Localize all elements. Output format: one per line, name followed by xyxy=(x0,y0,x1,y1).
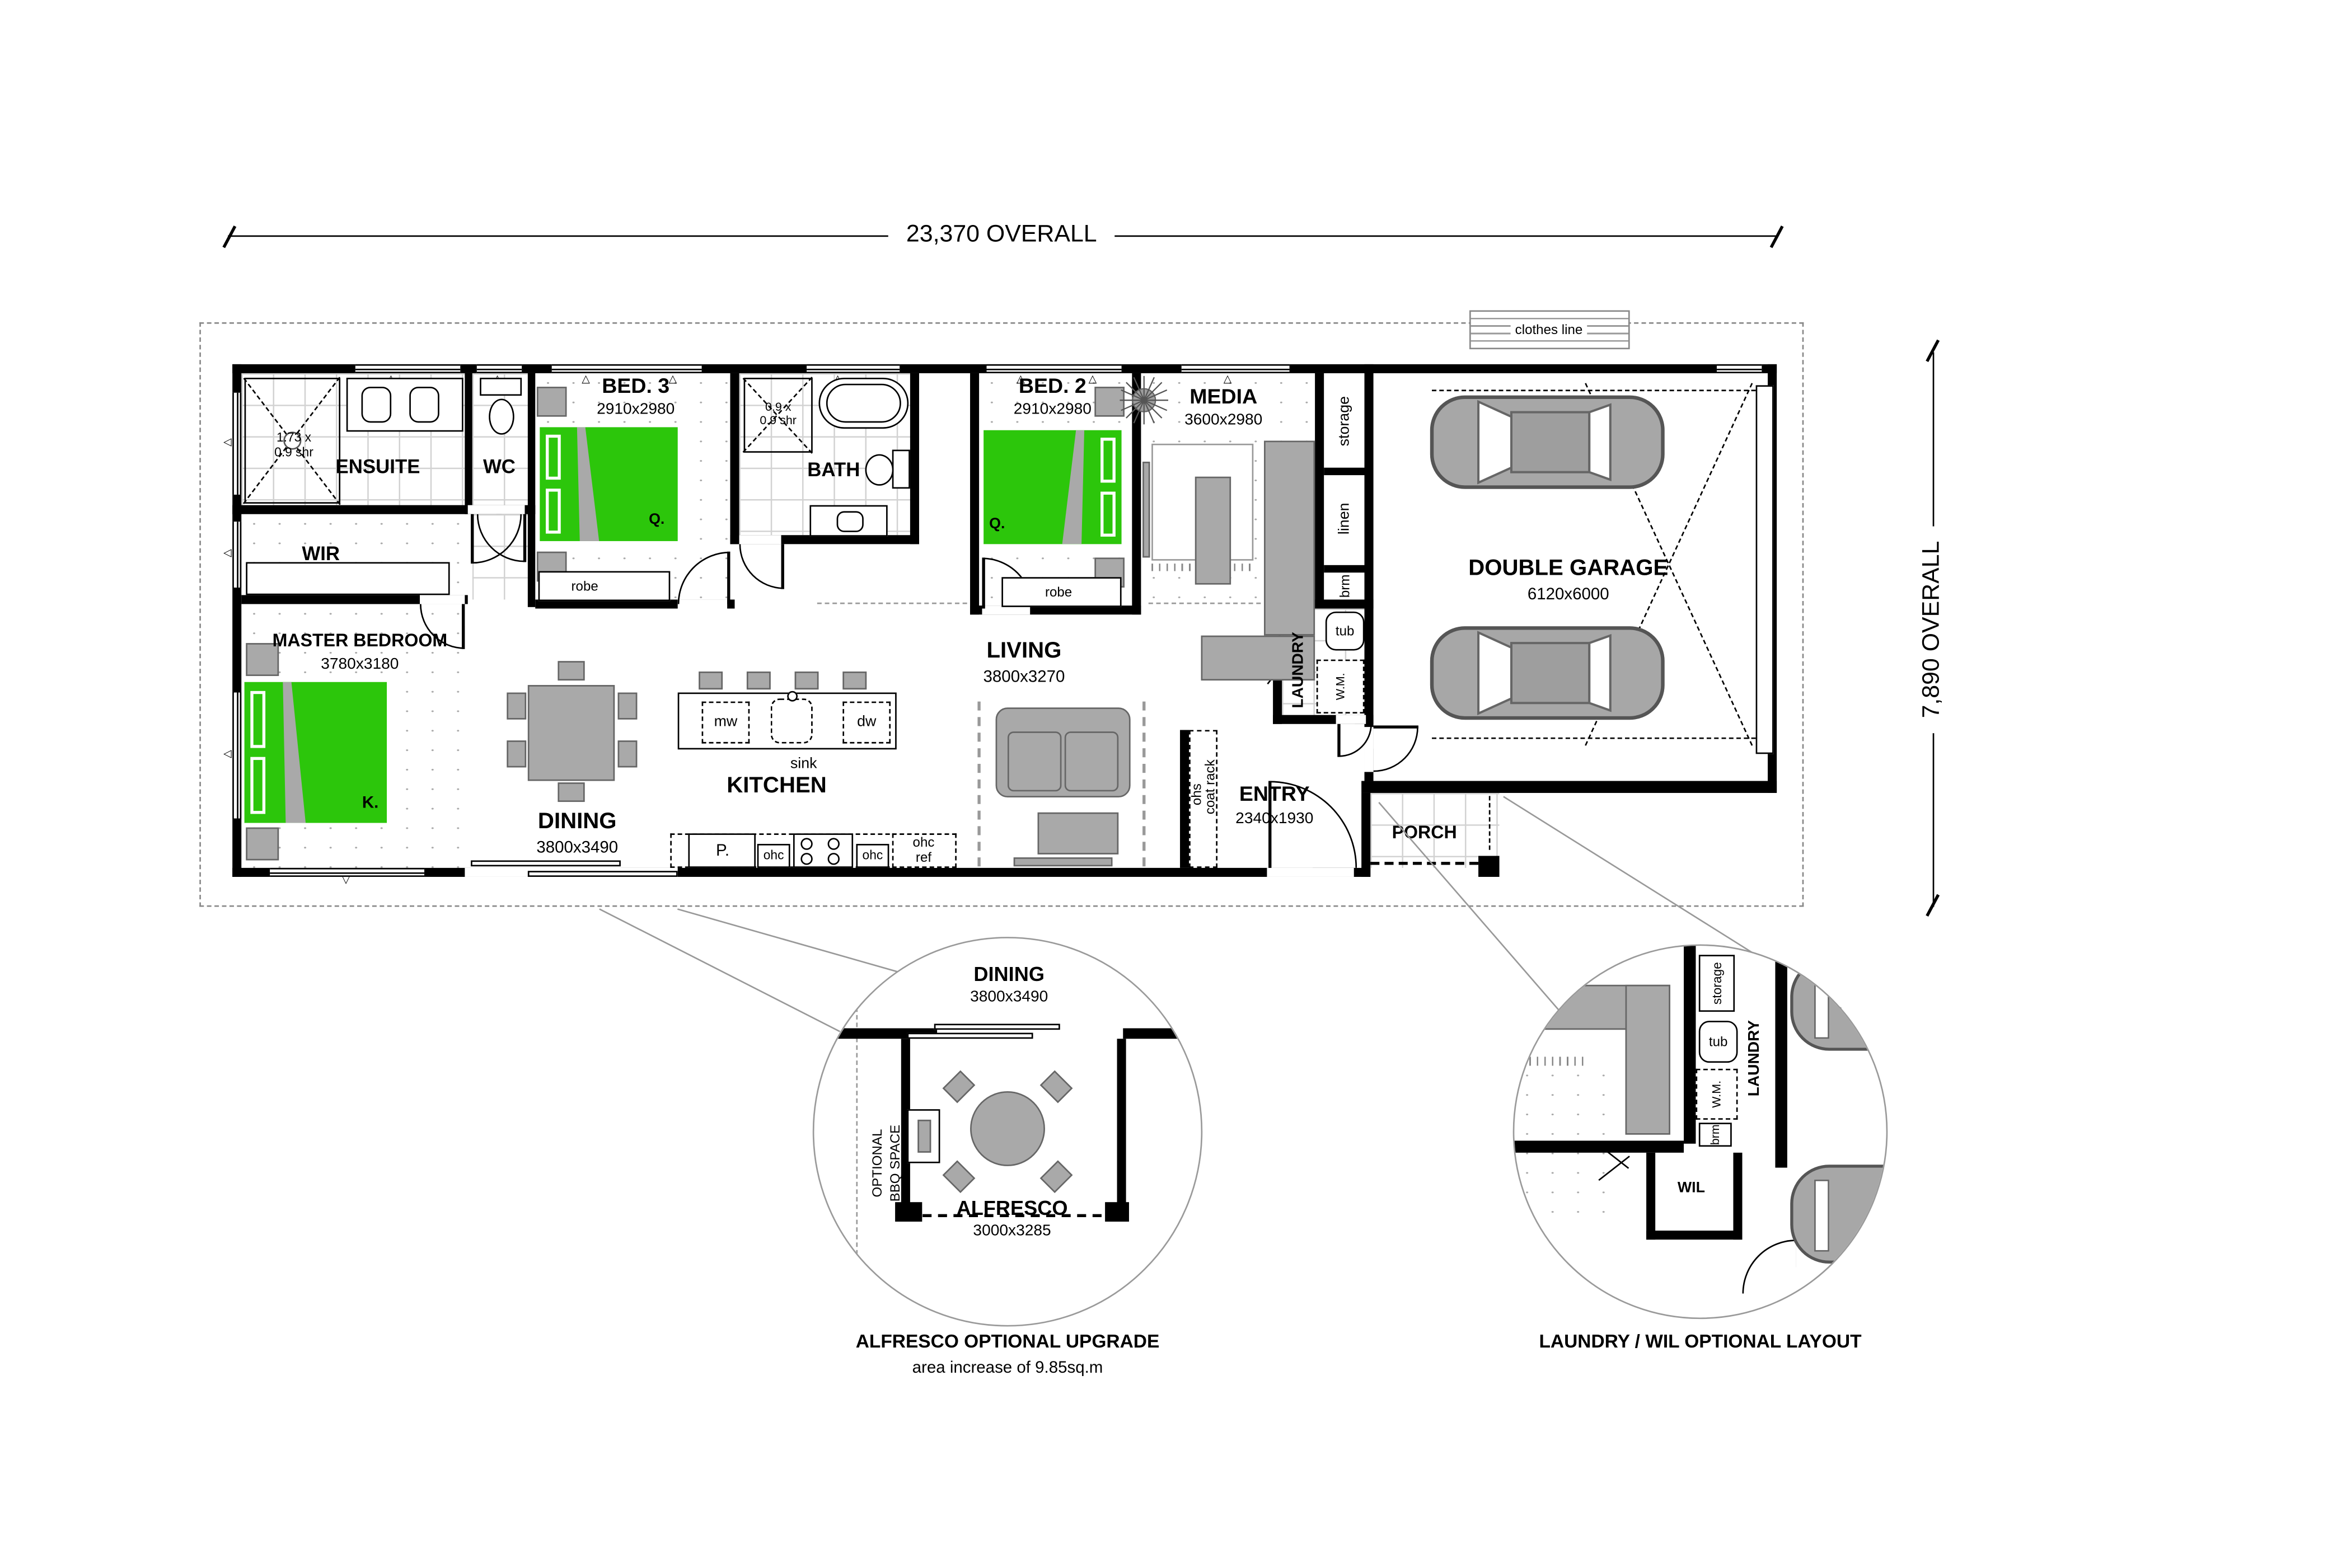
burner xyxy=(800,838,812,849)
wall-ensuite-wc xyxy=(465,373,472,514)
garage-dashed-line xyxy=(1432,389,1756,391)
bbq-plate xyxy=(917,1120,931,1153)
window xyxy=(986,364,1121,373)
window-marker-icon: △ xyxy=(1089,375,1097,386)
pillow xyxy=(546,489,561,533)
room-label-bed3: BED. 3 xyxy=(602,375,669,398)
burner xyxy=(828,853,840,865)
pillow xyxy=(1100,438,1116,482)
car-icon xyxy=(1427,393,1668,492)
room-label-laundry: LAUNDRY xyxy=(1290,632,1308,708)
door-swing xyxy=(1742,1240,1796,1293)
room-size-living: 3800x3270 xyxy=(984,668,1065,687)
door-gap-master xyxy=(420,595,465,604)
dining-chair xyxy=(618,692,638,719)
detail-dining-label: DINING xyxy=(973,963,1045,985)
sectional-sofa xyxy=(1264,440,1315,635)
mw-label: mw xyxy=(714,714,738,731)
wall-wc-bed3 xyxy=(528,373,535,607)
door-leaf xyxy=(982,557,984,608)
opening-dashed xyxy=(1149,603,1268,604)
sink-box xyxy=(771,698,813,743)
dining-chair xyxy=(618,740,638,767)
stool xyxy=(795,672,819,689)
leader-line xyxy=(599,908,840,1032)
door-gap-bath xyxy=(739,535,781,544)
door-gap-hall xyxy=(468,505,525,514)
window xyxy=(232,393,241,495)
window xyxy=(355,364,460,373)
detail-alfresco-size: 3000x3285 xyxy=(973,1223,1051,1241)
wall-porch-left xyxy=(1361,793,1370,877)
shower-size-label: 1.73 x 0.9 shr xyxy=(274,431,313,459)
door-leaf xyxy=(523,514,526,562)
room-label-ensuite: ENSUITE xyxy=(336,457,420,478)
stool xyxy=(842,672,867,689)
wall-storage-linen xyxy=(1324,468,1364,475)
porch-post xyxy=(1478,856,1500,877)
sofa-cushion xyxy=(1065,731,1118,791)
wir-shelf xyxy=(246,562,449,595)
alfresco-note: area increase of 9.85sq.m xyxy=(912,1359,1103,1378)
window-marker-icon: △ xyxy=(669,375,677,386)
sliding-door-leaf xyxy=(471,860,621,866)
room-label-wc: WC xyxy=(483,457,516,478)
door-leaf xyxy=(462,604,464,649)
wall xyxy=(1775,946,1787,1167)
room-label-media: MEDIA xyxy=(1189,386,1257,409)
linen-label: linen xyxy=(1337,503,1353,534)
sliding-door-leaf xyxy=(934,1024,1060,1030)
wall xyxy=(1514,1140,1684,1152)
wall-bed2-left xyxy=(970,373,979,614)
room-size-media: 3600x2980 xyxy=(1184,412,1262,430)
shower-size-label: 0.9 x 0.9 shr xyxy=(760,402,797,429)
sliding-door-leaf xyxy=(907,1033,1033,1039)
room-label-bed2: BED. 2 xyxy=(1019,375,1086,398)
brm-label: brm xyxy=(1708,1124,1722,1145)
tub-label: tub xyxy=(1709,1034,1728,1049)
room-label-master: MASTER BEDROOM xyxy=(273,631,448,651)
bed-tag-master: K. xyxy=(362,794,378,813)
dw-label: dw xyxy=(857,714,876,731)
car-icon xyxy=(1790,958,1888,1051)
alfresco-chair xyxy=(943,1071,976,1104)
tv-media xyxy=(1142,462,1150,557)
pillow xyxy=(250,691,265,748)
window xyxy=(807,364,900,373)
window-marker-icon: △ xyxy=(582,375,589,386)
window-marker-icon: ▽ xyxy=(342,875,350,886)
window xyxy=(1717,364,1762,373)
room-size-bed3: 2910x2980 xyxy=(597,402,675,419)
car-icon xyxy=(1427,623,1668,722)
window-marker-icon: ◁ xyxy=(223,438,231,448)
window xyxy=(1182,364,1290,373)
bedside-table xyxy=(537,387,567,417)
alfresco-chair xyxy=(1040,1071,1073,1104)
room-label-porch: PORCH xyxy=(1392,823,1457,843)
ottoman xyxy=(1195,477,1231,585)
wall-coat-rack xyxy=(1180,730,1189,867)
alfresco-chair xyxy=(943,1160,976,1193)
garage-door-panel xyxy=(1756,385,1774,754)
wall xyxy=(1684,946,1696,1144)
clothes-line-label: clothes line xyxy=(1511,322,1587,337)
wil-wall-bottom xyxy=(1646,1231,1742,1240)
wil-wall-right xyxy=(1733,1153,1742,1240)
stool xyxy=(747,672,771,689)
basin xyxy=(362,387,392,422)
detail-alfresco-label: ALFRESCO xyxy=(957,1197,1068,1219)
burner xyxy=(800,853,812,865)
sliding-door-leaf xyxy=(528,871,678,877)
room-label-bath: BATH xyxy=(807,460,860,482)
robe-label-bed3: robe xyxy=(572,579,598,594)
robe-bed3 xyxy=(538,571,671,602)
wall-garage-bottom xyxy=(1361,781,1777,793)
detail-dining-size: 3800x3490 xyxy=(970,989,1048,1007)
wall-bed3-bath xyxy=(730,373,739,544)
alfresco-post xyxy=(1105,1202,1129,1222)
bedside-table xyxy=(246,828,279,861)
room-size-garage: 6120x6000 xyxy=(1528,586,1609,604)
storage-label: storage xyxy=(1710,962,1725,1004)
ohs-label: ohs xyxy=(1189,783,1204,805)
alfresco-post xyxy=(895,1202,922,1222)
ohc-label: ohc xyxy=(863,849,883,863)
overall-width-dimension: 23,370 OVERALL xyxy=(888,222,1115,249)
alfresco-caption: ALFRESCO OPTIONAL UPGRADE xyxy=(856,1331,1160,1353)
room-size-entry: 2340x1930 xyxy=(1235,811,1313,828)
bed-tag-bed2: Q. xyxy=(989,517,1005,533)
room-label-wir: WIR xyxy=(302,544,340,566)
sink-label: sink xyxy=(790,756,817,773)
window xyxy=(552,364,702,373)
room-size-bed2: 2910x2980 xyxy=(1014,402,1092,419)
storage-label: storage xyxy=(1337,396,1353,446)
wil-label: WIL xyxy=(1678,1180,1705,1197)
window xyxy=(232,692,241,818)
faucet xyxy=(787,691,798,702)
door-leaf xyxy=(471,514,473,564)
room-label-kitchen: KITCHEN xyxy=(727,774,827,800)
brm-label: brm xyxy=(1337,575,1352,598)
ohc-ref-label: ohc ref xyxy=(913,835,935,865)
window xyxy=(477,364,522,373)
tub-label: tub xyxy=(1336,623,1355,639)
garage-dashed-line xyxy=(1432,738,1756,739)
toilet-cistern xyxy=(892,450,910,489)
pillow xyxy=(1100,492,1116,537)
rug-fringe xyxy=(1514,1057,1583,1065)
wm-label: W.M. xyxy=(1710,1081,1724,1108)
toilet-bowl xyxy=(489,398,514,434)
toilet-bowl xyxy=(865,454,894,486)
pillow xyxy=(250,757,265,814)
room-label-entry: ENTRY xyxy=(1239,783,1310,806)
coffee-table xyxy=(1038,813,1119,855)
car-window xyxy=(1814,1180,1829,1252)
room-label-living: LIVING xyxy=(986,640,1061,665)
room-label-dining: DINING xyxy=(538,810,617,835)
plant-icon xyxy=(1118,375,1169,426)
dining-chair xyxy=(507,692,526,719)
tv-unit xyxy=(1014,857,1113,866)
window xyxy=(232,522,241,588)
alfresco-chair xyxy=(1040,1160,1073,1193)
room-size-master: 3780x3180 xyxy=(321,657,399,674)
laundry-wil-caption: LAUNDRY / WIL OPTIONAL LAYOUT xyxy=(1539,1331,1861,1353)
window-marker-icon: ◁ xyxy=(223,548,231,559)
pantry-label: P. xyxy=(716,842,729,861)
door-gap-laundry-porch xyxy=(1336,715,1366,724)
wm-label: W.M. xyxy=(1334,673,1347,700)
door-leaf xyxy=(1374,725,1418,728)
detail-circle-laundry-wil: storage tub W.M. brm LAUNDRY WIL xyxy=(1513,944,1888,1319)
porch-edge-dashed xyxy=(1370,862,1478,865)
wall xyxy=(1123,1028,1180,1039)
laundry-label: LAUNDRY xyxy=(1745,1020,1763,1096)
dining-table xyxy=(528,685,615,781)
basin xyxy=(409,387,439,422)
alfresco-table xyxy=(970,1091,1045,1166)
ohc-label: ohc xyxy=(764,849,784,863)
overall-depth-dimension: 7,890 OVERALL xyxy=(1919,526,1946,733)
sectional-sofa xyxy=(1626,985,1670,1135)
door-leaf xyxy=(1337,724,1340,757)
door-leaf xyxy=(781,544,784,589)
dining-chair xyxy=(507,740,526,767)
basin xyxy=(837,511,864,532)
wil-wall-left xyxy=(1646,1153,1655,1240)
alfresco-wall-right xyxy=(1117,1039,1126,1204)
detail-circle-alfresco: DINING 3800x3490 OPTIONAL BBQ SPACE ALFR… xyxy=(813,937,1202,1326)
car-window xyxy=(1814,973,1829,1039)
stool xyxy=(699,672,723,689)
opening-dashed xyxy=(817,603,967,604)
bbq-space-label: OPTIONAL xyxy=(870,1129,885,1198)
burner xyxy=(828,838,840,849)
bed-tag-bed3: Q. xyxy=(649,511,664,528)
wall-bath-right xyxy=(910,373,919,544)
dining-chair xyxy=(558,782,584,802)
floorplan-stage: 23,370 OVERALL 7,890 OVERALL clothes lin… xyxy=(0,0,2351,1568)
coat-rack-label: coat rack xyxy=(1202,759,1217,814)
room-label-garage: DOUBLE GARAGE xyxy=(1468,557,1668,582)
pillow xyxy=(546,435,561,480)
bbq-space-label: BBQ SPACE xyxy=(888,1125,903,1202)
bathtub-inner xyxy=(826,384,901,423)
sofa-cushion xyxy=(1008,731,1061,791)
door-leaf xyxy=(727,552,729,604)
wall-linen-brm xyxy=(1324,565,1364,572)
window-marker-icon: ◁ xyxy=(223,749,231,760)
room-size-dining: 3800x3490 xyxy=(536,839,618,858)
robe-label-bed2: robe xyxy=(1045,585,1072,600)
car-icon xyxy=(1790,1165,1888,1264)
toilet-cistern xyxy=(480,378,522,396)
porch-edge-dashed xyxy=(1489,796,1491,849)
wall-media-right xyxy=(1315,373,1324,609)
dining-chair xyxy=(558,661,584,680)
door-gap-entry xyxy=(1267,868,1354,877)
floorplan: 23,370 OVERALL 7,890 OVERALL clothes lin… xyxy=(0,0,2351,1568)
